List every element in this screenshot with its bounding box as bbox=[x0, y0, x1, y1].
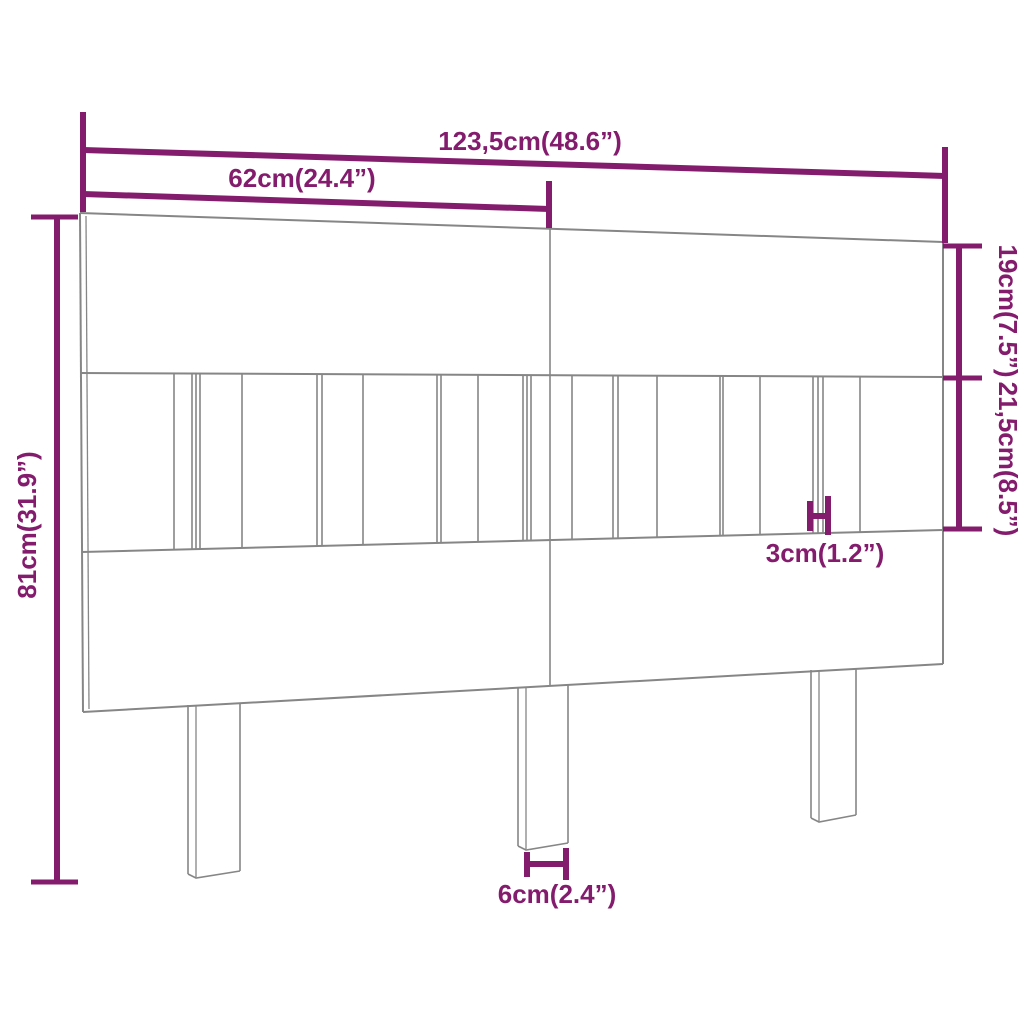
right-leg-bottom-edge bbox=[811, 815, 856, 822]
dim-right-heights: 19cm(7.5”) 21,5cm(8.5”) bbox=[943, 245, 1023, 537]
dim-label-total-height: 81cm(31.9”) bbox=[12, 451, 42, 598]
dim-label-slat-width: 3cm(1.2”) bbox=[766, 538, 885, 568]
dim-total-width: 123,5cm(48.6”) bbox=[83, 112, 945, 243]
headboard-dimension-diagram: 123,5cm(48.6”) 62cm(24.4”) 19cm(7.5”) 21… bbox=[0, 0, 1024, 1024]
left-outer-edge bbox=[80, 213, 83, 712]
middle-leg bbox=[518, 685, 568, 850]
right-leg bbox=[811, 668, 856, 822]
left-depth-edge bbox=[86, 216, 89, 709]
dim-label-slat-section-height: 21,5cm(8.5”) bbox=[993, 382, 1023, 537]
dim-total-height: 81cm(31.9”) bbox=[12, 217, 78, 882]
dim-leg-width: 6cm(2.4”) bbox=[498, 848, 617, 909]
dim-panel-width: 62cm(24.4”) bbox=[83, 163, 549, 228]
dim-panel-width-line bbox=[83, 194, 549, 209]
bottom-board-bottom-edge bbox=[83, 664, 943, 712]
dim-label-panel-width: 62cm(24.4”) bbox=[228, 163, 375, 193]
left-leg bbox=[188, 703, 240, 878]
dim-label-leg-width: 6cm(2.4”) bbox=[498, 879, 617, 909]
diagram-page: 123,5cm(48.6”) 62cm(24.4”) 19cm(7.5”) 21… bbox=[0, 0, 1024, 1024]
top-board-top-edge bbox=[80, 213, 943, 242]
slat-section bbox=[174, 373, 860, 549]
dim-label-total-width: 123,5cm(48.6”) bbox=[438, 126, 622, 156]
dim-label-top-board-height: 19cm(7.5”) bbox=[993, 245, 1023, 378]
left-end-edge bbox=[80, 213, 89, 712]
